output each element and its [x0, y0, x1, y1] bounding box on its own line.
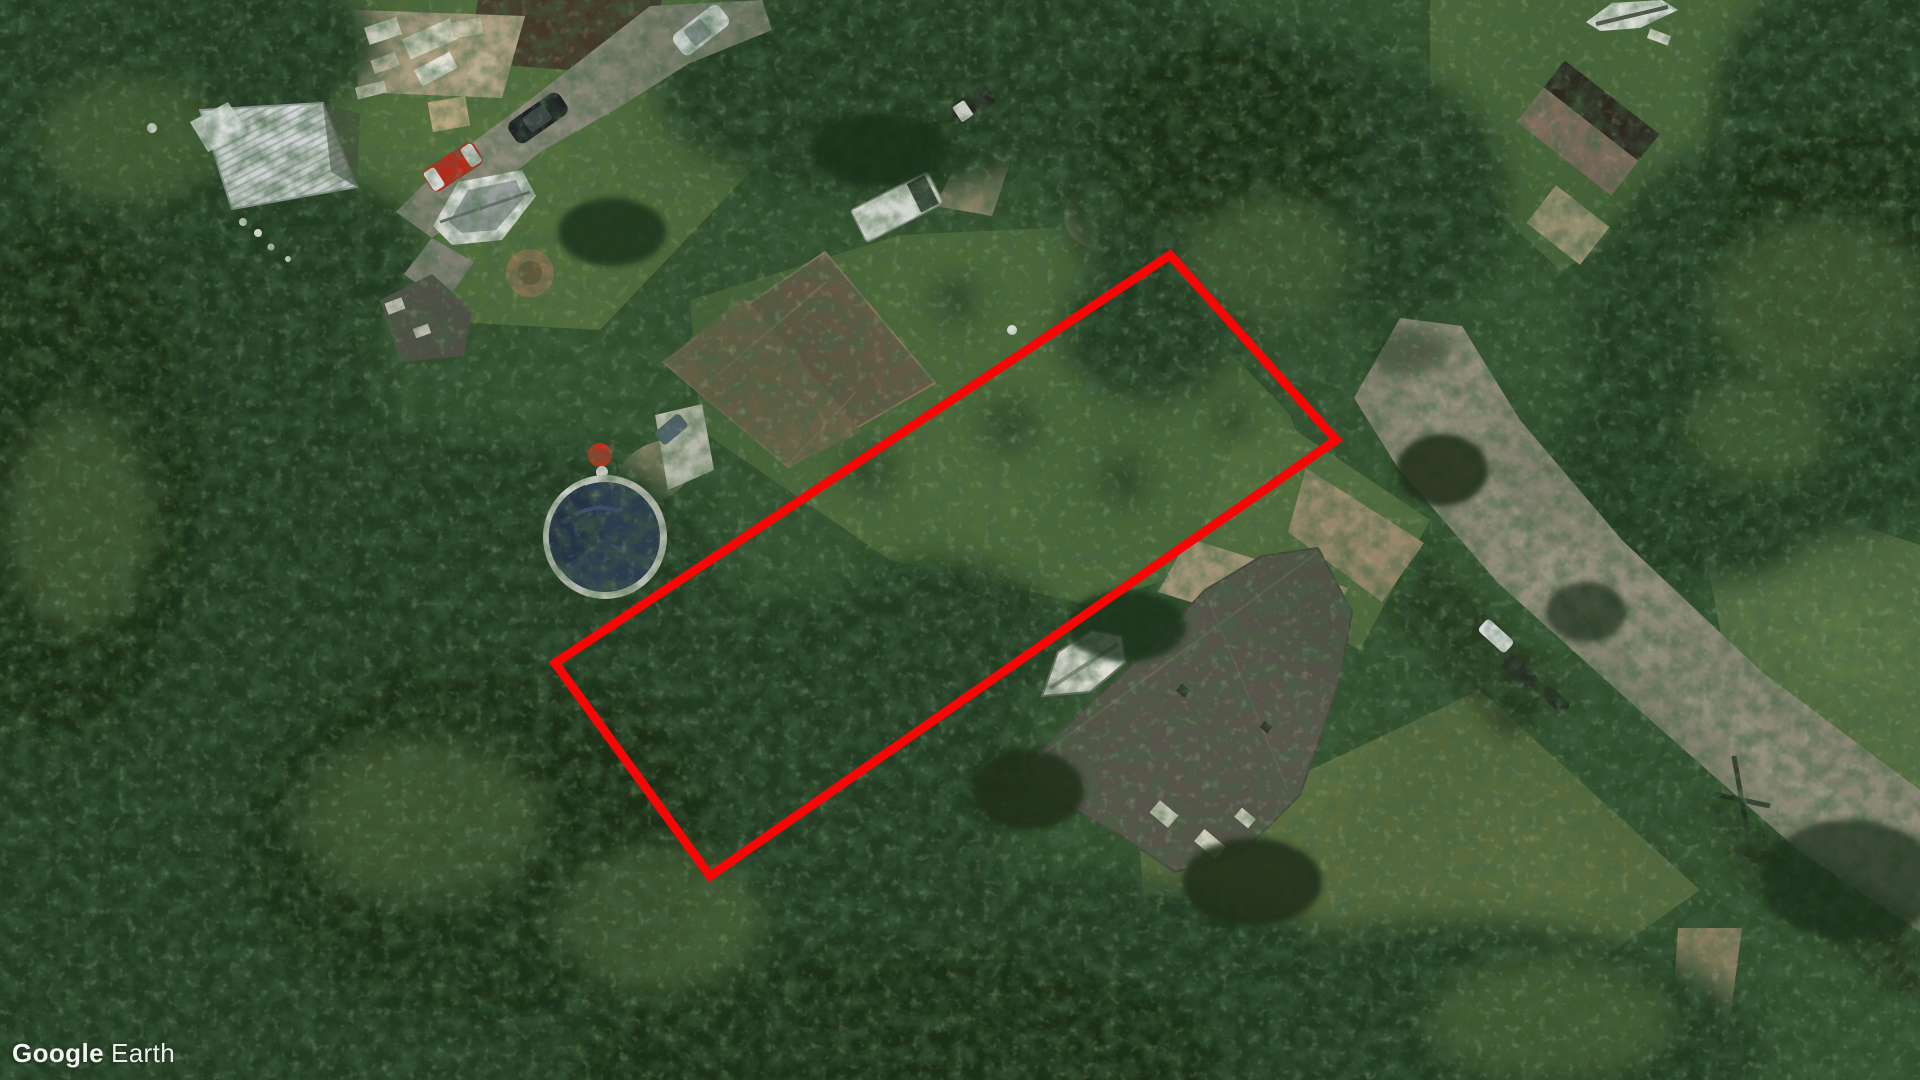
watermark-product: Earth — [111, 1038, 175, 1068]
watermark-brand: Google — [12, 1038, 104, 1068]
google-earth-watermark: GoogleEarth — [12, 1040, 175, 1066]
google-earth-viewport[interactable]: GoogleEarth — [0, 0, 1920, 1080]
satellite-imagery — [0, 0, 1920, 1080]
canopy-speckle-light — [0, 0, 1920, 1080]
